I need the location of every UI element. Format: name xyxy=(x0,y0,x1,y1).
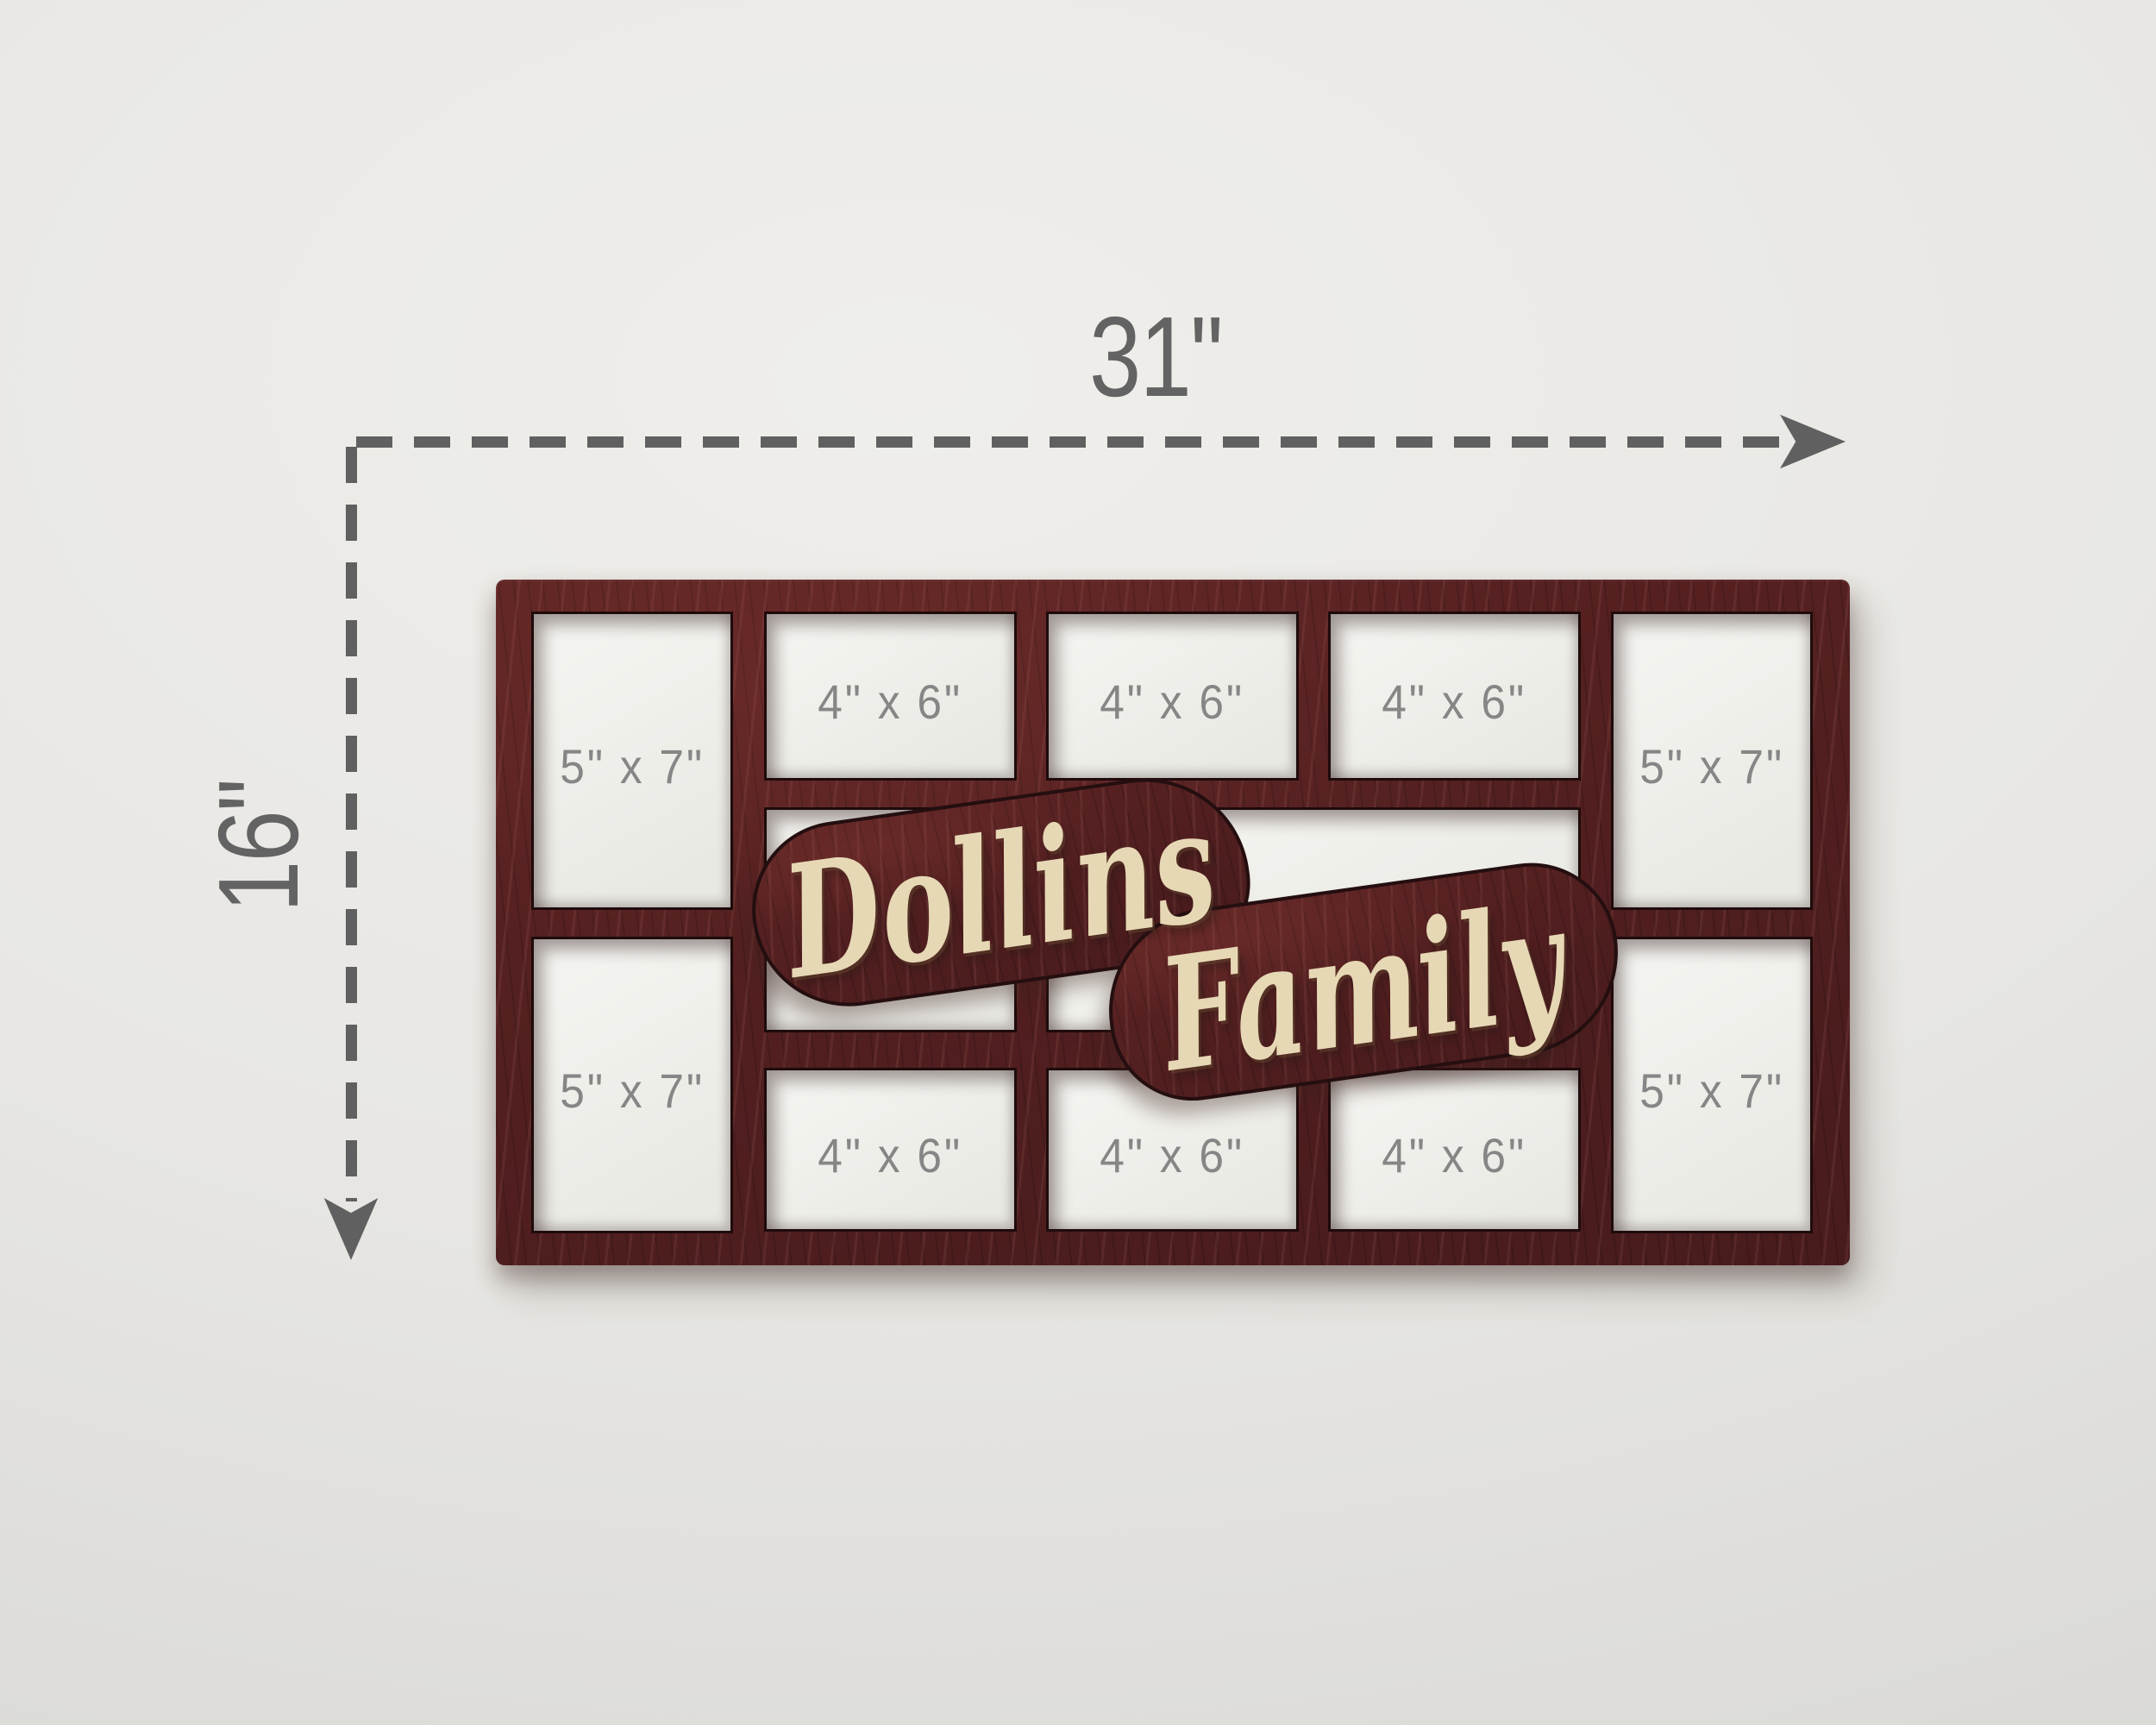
photo-opening-5x7-bottom-left: 5" x 7" xyxy=(534,939,730,1231)
photo-opening-4x6-top-3: 4" x 6" xyxy=(1331,614,1578,778)
height-dimension-label: 16" xyxy=(202,705,316,988)
arrow-down-icon xyxy=(322,1198,380,1260)
opening-size-label: 4" x 6" xyxy=(1100,1127,1245,1183)
width-dimension-label: 31" xyxy=(1014,300,1297,414)
opening-size-label: 5" x 7" xyxy=(1639,1063,1784,1119)
opening-size-label: 4" x 6" xyxy=(818,674,963,730)
photo-opening-4x6-top-1: 4" x 6" xyxy=(767,614,1014,778)
opening-size-label: 4" x 6" xyxy=(1382,1127,1527,1183)
photo-opening-4x6-bottom-1: 4" x 6" xyxy=(767,1070,1014,1229)
opening-size-label: 4" x 6" xyxy=(1382,674,1527,730)
height-dimension-line xyxy=(346,447,357,1201)
photo-opening-5x7-bottom-right: 5" x 7" xyxy=(1614,939,1810,1231)
photo-opening-5x7-top-left: 5" x 7" xyxy=(534,614,730,907)
opening-size-label: 4" x 6" xyxy=(1100,674,1245,730)
photo-opening-4x6-top-2: 4" x 6" xyxy=(1049,614,1296,778)
arrow-right-icon xyxy=(1780,412,1846,471)
opening-size-label: 5" x 7" xyxy=(1639,738,1784,794)
opening-size-label: 5" x 7" xyxy=(560,738,705,794)
photo-opening-4x6-bottom-3: 4" x 6" xyxy=(1331,1070,1578,1229)
opening-size-label: 4" x 6" xyxy=(818,1127,963,1183)
product-scene: 31" 16" 5" x 7" 5" x 7" 5" x 7" 5" x 7" … xyxy=(0,0,2156,1725)
photo-opening-5x7-top-right: 5" x 7" xyxy=(1614,614,1810,907)
collage-frame: 5" x 7" 5" x 7" 5" x 7" 5" x 7" 4" x 6" … xyxy=(496,580,1850,1265)
width-dimension-line xyxy=(356,436,1783,448)
opening-size-label: 5" x 7" xyxy=(560,1063,705,1119)
